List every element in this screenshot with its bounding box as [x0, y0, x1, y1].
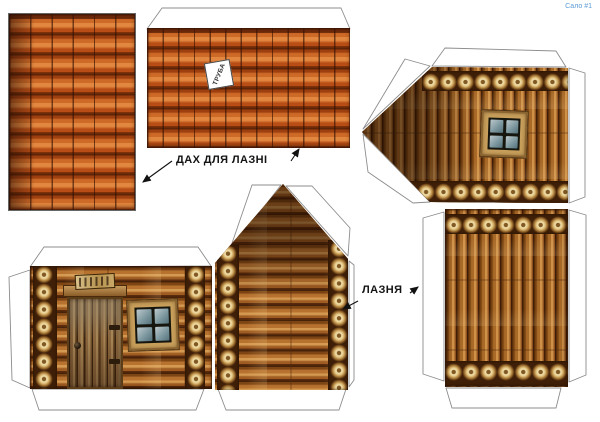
log-ends-column [33, 266, 57, 389]
front-window [126, 298, 180, 352]
window-pane [136, 309, 151, 324]
log-ends-column [185, 266, 205, 389]
chimney-slot-tag: ТРУБА [204, 59, 234, 90]
chimney-tag-label: ТРУБА [211, 63, 226, 87]
door [67, 297, 123, 389]
log-ends-column [217, 245, 239, 390]
caption-roof: ДАХ ДЛЯ ЛАЗНІ [176, 154, 267, 166]
gable-end-window [479, 109, 529, 159]
log-ends-row [445, 214, 568, 234]
door-knob [74, 342, 81, 349]
back-wall-piece [445, 209, 568, 387]
series-label: Сало #1 [565, 3, 592, 10]
roof-main-piece [147, 28, 350, 148]
papercraft-sheet: ТРУБА [0, 0, 600, 422]
door-hinge [109, 325, 120, 330]
tile-edge-shading [9, 14, 35, 210]
window-pane [506, 120, 519, 133]
roof-strip-piece [8, 13, 136, 211]
window-pane [490, 135, 503, 148]
window-pane [137, 327, 152, 342]
sign-lettering [79, 276, 111, 287]
window-pane [490, 120, 503, 133]
log-ends-row [422, 71, 568, 91]
window-pane [155, 326, 170, 341]
caption-building: ЛАЗНЯ [362, 284, 402, 296]
log-ends-row [445, 361, 568, 386]
door-hinge [109, 359, 120, 364]
door-sign [75, 273, 116, 290]
window-glass [134, 306, 171, 343]
log-ends-column [328, 240, 348, 390]
window-glass [487, 117, 520, 150]
window-pane [505, 136, 518, 149]
window-pane [154, 308, 169, 323]
front-wall-piece [30, 266, 212, 389]
